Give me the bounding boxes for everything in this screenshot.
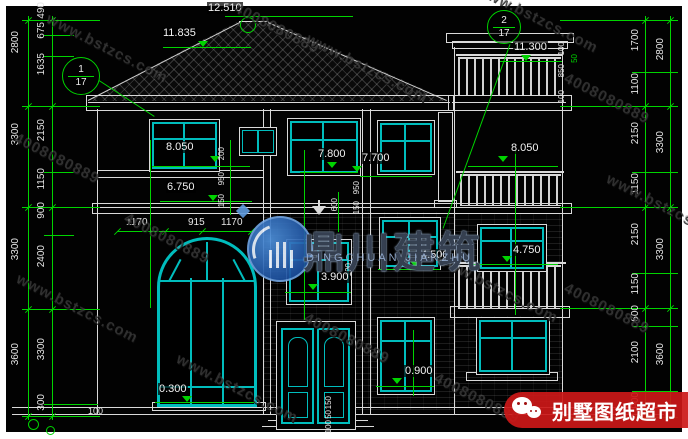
dim-label-small: 100 [557, 90, 566, 103]
elevation-label: 0.300 [158, 383, 188, 395]
dim-label-small: 150 [324, 396, 333, 409]
dim-label: 3300 [36, 338, 47, 360]
dim-ext-line [22, 416, 100, 417]
level-symbol [46, 426, 55, 435]
elevation-label: 7.800 [317, 148, 347, 160]
dim-label: 3600 [10, 343, 21, 365]
dim-label: 1150 [36, 168, 47, 190]
elevation-triangle [327, 162, 337, 168]
dim-label-small: 600 [330, 198, 339, 211]
dim-label-small: 150 [352, 201, 361, 214]
window-mullion [257, 131, 259, 152]
elevation-label: 7.700 [361, 152, 391, 164]
window-frame [380, 123, 432, 172]
level-symbol [28, 419, 39, 430]
dim-ext-line [22, 106, 100, 107]
elevation-leader [470, 264, 558, 265]
dim-label: 2100 [630, 341, 641, 363]
dim-line-right-inner [645, 16, 646, 420]
window-transom [382, 140, 430, 142]
pilaster-capital [434, 200, 457, 208]
elevation-leader [160, 201, 252, 202]
sill-band-line-2 [97, 177, 263, 178]
window-1f-tower [476, 317, 550, 375]
detail-ref-num: 2 [501, 16, 507, 26]
window-mullion [404, 322, 406, 390]
dim-label: 3300 [655, 131, 666, 153]
dim-label-small: 950 [352, 181, 361, 194]
elevation-label: 8.050 [165, 141, 195, 153]
porch-lamp-icon [312, 206, 326, 215]
dim-label: 3600 [655, 343, 666, 365]
elevation-leader [152, 166, 250, 167]
window-mullion [404, 125, 406, 170]
arch-fan-right [232, 259, 245, 281]
elevation-triangle [308, 284, 318, 290]
logo-latin-text: DINGCHUAN JIANZHU [306, 252, 473, 264]
elevation-leader [155, 402, 255, 403]
detail-ref-den: 17 [75, 78, 86, 88]
pilaster [438, 112, 453, 202]
window-3f-right [377, 120, 435, 175]
dim-label: 2800 [655, 38, 666, 60]
dim-line-left-outer [28, 16, 29, 420]
dim-label-small: 100 [324, 420, 333, 433]
terrace-rail-3f [456, 171, 564, 173]
window-3f-small [239, 127, 277, 156]
dim-label-small: 100 [88, 406, 103, 416]
dim-label-small: 100 [557, 42, 566, 55]
window-transom [481, 337, 545, 339]
elevation-leader [163, 47, 251, 48]
elevation-leader [376, 386, 434, 387]
wechat-eye [535, 410, 537, 412]
dim-label: 2150 [630, 122, 641, 144]
elevation-leader [285, 292, 351, 293]
terrace-balustrade-3f [460, 174, 561, 206]
dim-label: 300 [36, 394, 47, 411]
logo-column [269, 250, 272, 268]
logo-column [276, 242, 279, 268]
window-3f-center [287, 118, 361, 176]
window-mullion [322, 123, 324, 171]
dim-label: 2800 [10, 31, 21, 53]
wechat-eye [530, 410, 532, 412]
elevation-label: 11.300 [513, 41, 548, 53]
wechat-eye [517, 402, 520, 405]
logo-chinese-text: 鼎川建筑 [303, 219, 483, 280]
tower-roof-balustrade [458, 57, 561, 96]
tower-band-line [452, 102, 566, 103]
dim-ext-line [560, 20, 678, 21]
elevation-label: 4.750 [512, 244, 542, 256]
dim-label-small: 50 [324, 410, 333, 419]
dim-label-small: 950 [217, 172, 226, 185]
eave-cornice-line [88, 102, 450, 103]
dim-label: 1100 [630, 73, 641, 95]
dim-label: 915 [188, 217, 205, 228]
elevation-triangle [352, 166, 362, 172]
promo-banner-label: 别墅图纸超市 [552, 396, 678, 425]
dim-label: 1170 [221, 217, 243, 228]
elevation-triangle [498, 156, 508, 162]
detail-ref-1-17: 1 17 [62, 57, 100, 95]
dim-label: 1635 [36, 53, 47, 75]
dim-label: 490 [36, 2, 47, 19]
dim-label: 1150 [630, 273, 641, 295]
window-transom [292, 139, 356, 141]
logo-column [283, 242, 286, 268]
logo-column [290, 250, 293, 268]
dim-label: 3300 [10, 238, 21, 260]
door-panel [288, 337, 308, 387]
dim-ext-line [44, 404, 98, 405]
elevation-leader [360, 176, 432, 177]
arch-spring-line [160, 280, 254, 282]
wechat-eye [524, 402, 527, 405]
leader-vline [230, 140, 231, 215]
leader-vline [413, 330, 414, 396]
dim-label-small: 200 [217, 147, 226, 160]
window-transom [382, 340, 430, 342]
elevation-label: 11.835 [162, 27, 197, 39]
tower-parapet-rail [456, 54, 563, 56]
elevation-leader [300, 172, 358, 173]
window-transom [154, 138, 215, 140]
dim-ext-line [22, 207, 100, 208]
detail-ref-num: 1 [78, 65, 84, 75]
elevation-label: 8.050 [510, 142, 540, 154]
wechat-icon [512, 396, 546, 424]
dim-label: 3300 [655, 238, 666, 260]
elevation-leader [500, 61, 562, 62]
promo-banner: 别墅图纸超市 [504, 392, 688, 428]
dim-ext-line [44, 56, 74, 57]
dim-label: 2150 [630, 223, 641, 245]
detail-ref-den: 17 [498, 29, 509, 39]
dim-ext-line [44, 235, 74, 236]
window-frame [290, 121, 358, 173]
cad-elevation-screenshot: 2800 3300 3300 3600 490 675 1635 2150 11… [0, 0, 688, 439]
elevation-label: 0.900 [404, 365, 434, 377]
elevation-triangle [502, 256, 512, 262]
window-transom [482, 240, 542, 242]
window-frame [479, 320, 547, 372]
dim-label: 2150 [36, 119, 47, 141]
wechat-bubble-small [527, 406, 541, 418]
left-wall-edge [97, 109, 98, 415]
elevation-label: 6.750 [166, 181, 196, 193]
dim-label-small: 50 [570, 54, 579, 63]
arch-fan-left [168, 259, 181, 281]
dim-label: 2400 [36, 245, 47, 267]
dim-line-left-inner [52, 16, 53, 420]
dim-label: 1700 [630, 29, 641, 51]
elevation-triangle [392, 378, 402, 384]
dim-label-small: 150 [217, 194, 226, 207]
window-mullion [511, 322, 513, 370]
dim-label: 900 [36, 202, 47, 219]
tower-band [448, 95, 572, 111]
elevation-leader [468, 166, 558, 167]
